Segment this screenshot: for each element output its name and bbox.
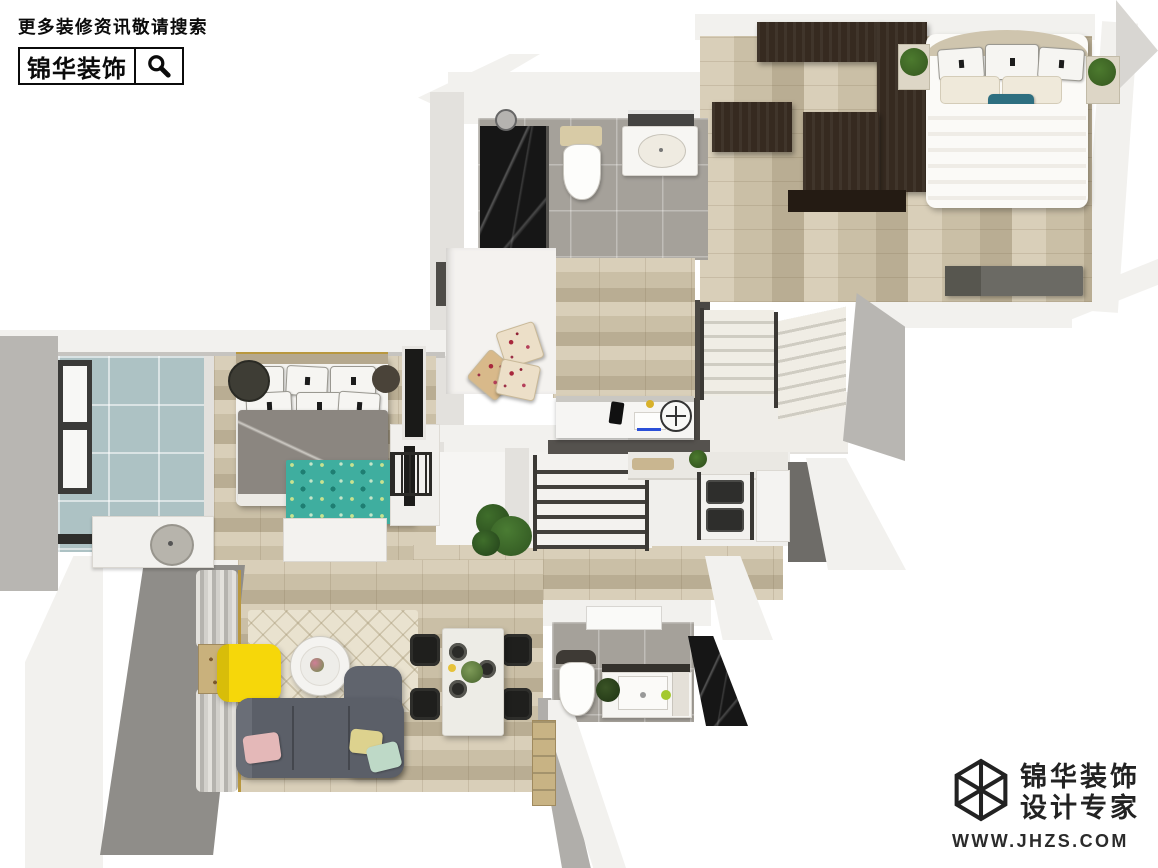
watermark-tagline: 更多装修资讯敬请搜索 (18, 14, 208, 39)
wardrobe-lower-shadow (788, 190, 906, 212)
dining-chair (410, 634, 440, 666)
kitchen-cabinet (756, 470, 790, 542)
stool-dark-left (228, 360, 270, 402)
plate (449, 680, 467, 698)
tv-board-dark-segment (945, 266, 981, 296)
plant-left (900, 48, 928, 76)
logo-subtitle: 设计专家 (1020, 793, 1140, 824)
wall-master-left (0, 336, 58, 591)
magnifier-icon (134, 49, 182, 83)
table-plant (461, 661, 483, 683)
plant-bath2 (596, 678, 620, 702)
plate (449, 643, 467, 661)
logo-website: WWW.JHZS.COM (952, 831, 1140, 852)
stair-rail-bar (537, 530, 645, 534)
bed-duvet (928, 104, 1086, 206)
sink-drain (659, 148, 663, 152)
desk-pen-blue (637, 428, 661, 431)
stair-rail-bar (537, 545, 645, 549)
dining-chair (502, 634, 532, 666)
plant-large (472, 530, 500, 556)
desk-compass (660, 400, 692, 432)
stairs-upper-right-flight (778, 307, 846, 421)
toilet-bowl (563, 144, 601, 200)
curtain-lower (196, 688, 238, 792)
kitchen-basin (706, 480, 744, 504)
wardrobe-center-block (803, 112, 879, 192)
watermark-topleft: 更多装修资讯敬请搜索 锦华装饰 (18, 14, 208, 85)
window-pane (63, 430, 87, 488)
lemon-dot (448, 664, 456, 672)
wall-corner-top-right (1116, 0, 1158, 92)
kitchen-side-panel (750, 472, 754, 540)
floorplan-render-canvas: 更多装修资讯敬请搜索 锦华装饰 锦华装饰 (0, 0, 1158, 868)
plant-right (1088, 58, 1116, 86)
floral-pillow (495, 358, 542, 402)
metal-slat-bench (390, 452, 432, 496)
stair-rail-mid (774, 312, 778, 408)
dining-chair (502, 688, 532, 720)
plant-small-kitchen (689, 450, 707, 468)
shower-glass-edge (546, 126, 549, 248)
logo-bottomright: 锦华装饰 设计专家 WWW.JHZS.COM (952, 758, 1140, 852)
pillow-pink (242, 732, 282, 765)
armchair-yellow (217, 644, 281, 702)
stair-rail-left (700, 308, 704, 400)
stair-rail-bar (537, 500, 645, 504)
pillow (985, 44, 1039, 80)
watermark-search-box: 锦华装饰 (18, 47, 184, 85)
kitchen-basin (706, 508, 744, 532)
green-dot (661, 690, 671, 700)
sofa-cushion-line (292, 706, 294, 770)
wall-balcony-outer (25, 556, 103, 868)
logo-brand: 锦华装饰 (1020, 762, 1140, 793)
faucet-dot (640, 692, 646, 698)
window-pane (63, 366, 87, 422)
kitchen-jars (632, 458, 674, 470)
table-flowers (310, 658, 324, 672)
kitchen-side-panel (697, 472, 701, 540)
shower-head (495, 109, 517, 131)
floor-hall-upper (553, 258, 695, 398)
curtain-upper (196, 570, 238, 648)
wardrobe-top-bar (757, 22, 881, 62)
entry-cabinet-wood (532, 720, 556, 806)
vanity2-shelf (672, 672, 689, 716)
stair-rail-bar (537, 485, 645, 489)
shower-marble (480, 126, 546, 248)
sink-drain (168, 541, 173, 546)
stair-rail-bar (537, 515, 645, 519)
tall-mirror-dark (402, 346, 426, 440)
wardrobe-left-desk (712, 102, 792, 152)
shower2-marble-wedge (688, 636, 748, 726)
toilet-tank (560, 126, 602, 146)
vanity2-top-strip (602, 664, 690, 672)
desk-gold-dot (646, 400, 654, 408)
wireframe-cube-icon (952, 758, 1010, 827)
window-box-bath2 (586, 606, 662, 630)
bench-low (283, 518, 387, 562)
watermark-brand: 锦华装饰 (20, 49, 134, 83)
dining-chair (410, 688, 440, 720)
stool-dark-right (372, 365, 400, 393)
toilet2-bowl (559, 662, 595, 716)
stairs-upper-left-flight (702, 310, 774, 396)
